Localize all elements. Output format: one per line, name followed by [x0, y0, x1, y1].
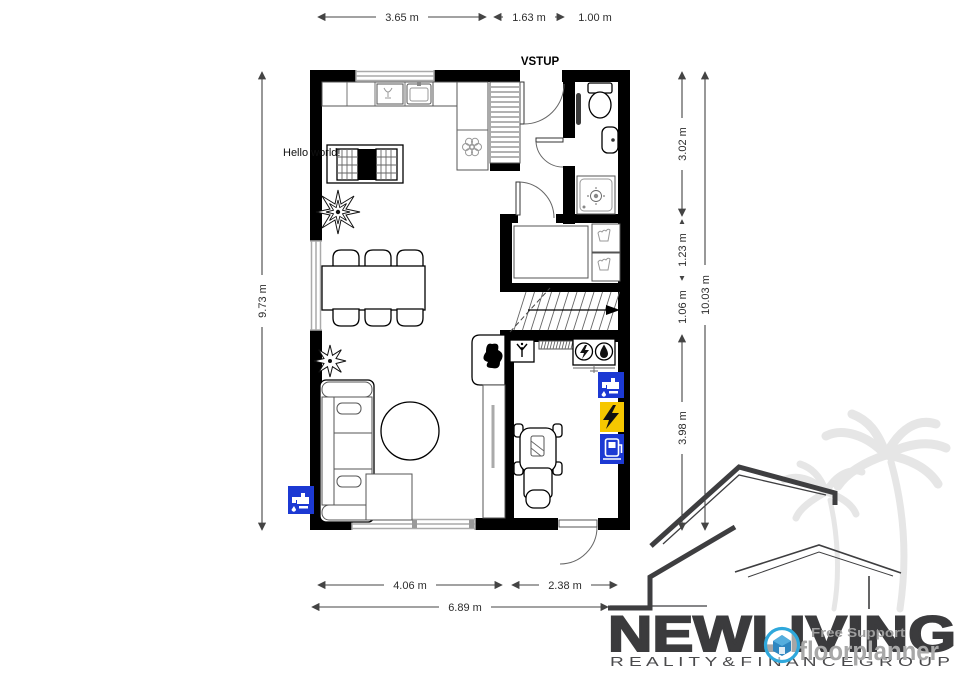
washing-machine-icon-2 — [592, 253, 620, 281]
house-outline-logo — [608, 467, 901, 609]
water-tap-icon-living — [288, 486, 314, 514]
fireplace-icon — [472, 335, 505, 385]
utility-wall — [510, 339, 615, 373]
dim-right-2: 1.23 m — [677, 233, 689, 267]
towel-radiator — [576, 93, 581, 125]
stairs-arrow-icon — [528, 305, 620, 315]
dining-chair — [333, 309, 359, 326]
rug — [366, 474, 412, 520]
ev-charger-icon — [600, 434, 624, 464]
window-left — [310, 241, 322, 330]
sink-icon — [407, 82, 431, 104]
closet — [514, 226, 588, 278]
dim-top-3: 1.00 m — [578, 12, 612, 24]
wardrobe — [490, 82, 520, 163]
storage-door — [516, 182, 556, 223]
utility-meter-panel — [573, 339, 615, 373]
shower-icon — [577, 176, 615, 214]
dim-left: 9.73 m — [257, 284, 269, 318]
floorplanner-icon — [766, 629, 799, 662]
kitchen-tall-unit — [433, 82, 457, 106]
dim-bottom-total: 6.89 m — [448, 602, 482, 614]
dim-bottom-2: 2.38 m — [548, 580, 582, 592]
stroller-icon — [514, 424, 562, 508]
dining-chair — [397, 250, 423, 267]
radiator-icon — [539, 341, 574, 349]
dining-chair — [333, 250, 359, 267]
exterior-door-bottom — [558, 518, 598, 564]
toilet-icon — [588, 83, 612, 118]
bathroom — [576, 83, 618, 214]
laundry-room — [514, 224, 620, 281]
dining-area — [322, 250, 425, 326]
plant-icon-small — [314, 345, 346, 377]
dishwasher-icon — [377, 84, 403, 104]
stove-icon — [337, 149, 397, 180]
plant-icon — [316, 190, 360, 234]
dining-chair — [365, 250, 391, 267]
palm-watermark — [784, 414, 946, 609]
dim-right-3: 1.06 m — [677, 290, 689, 324]
entrance-label: VSTUP — [521, 56, 560, 68]
annotation-label: Hello world! — [283, 147, 340, 159]
kitchen — [316, 82, 488, 234]
entrance-door — [520, 70, 564, 124]
round-table — [381, 402, 439, 460]
washbasin-icon — [602, 127, 618, 153]
dining-chair — [397, 309, 423, 326]
dim-top-2: 1.63 m — [512, 12, 546, 24]
water-tap-icon-garage — [598, 372, 624, 398]
vent-icon — [510, 340, 534, 362]
partition — [472, 335, 505, 518]
dim-right-total: 10.03 m — [700, 275, 712, 315]
dining-chair — [365, 309, 391, 326]
utility-room — [514, 372, 624, 508]
dim-bottom-1: 4.06 m — [393, 580, 427, 592]
electricity-icon — [600, 402, 624, 432]
bathroom-door — [536, 138, 575, 167]
dining-table — [322, 266, 425, 310]
stairs — [510, 288, 620, 332]
dim-top-1: 3.65 m — [385, 12, 419, 24]
dim-right-4: 3.98 m — [677, 411, 689, 445]
window-top — [356, 70, 434, 82]
floorplan-page: VSTUP Hello world! 3.65 m 1.63 m 1.00 m … — [0, 0, 960, 679]
washing-machine-icon — [592, 224, 620, 252]
floorplanner-label: floorplanner — [799, 636, 939, 666]
kitchen-counter-right — [457, 82, 488, 170]
dim-right-1: 3.02 m — [677, 127, 689, 161]
